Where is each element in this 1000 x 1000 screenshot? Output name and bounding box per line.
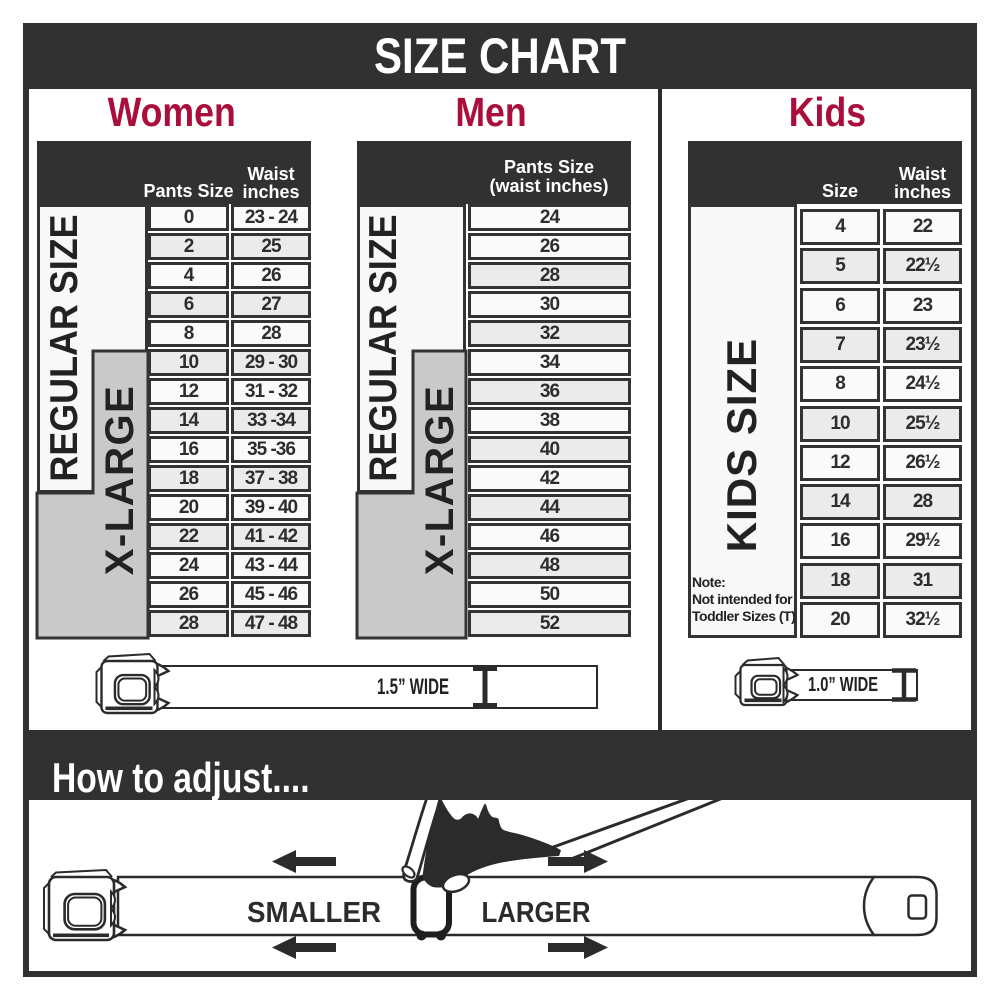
svg-text:1.0” WIDE: 1.0” WIDE: [808, 674, 878, 696]
svg-text:1.5” WIDE: 1.5” WIDE: [377, 674, 449, 699]
svg-text:SMALLER: SMALLER: [247, 897, 381, 929]
svg-text:LARGER: LARGER: [482, 897, 591, 929]
